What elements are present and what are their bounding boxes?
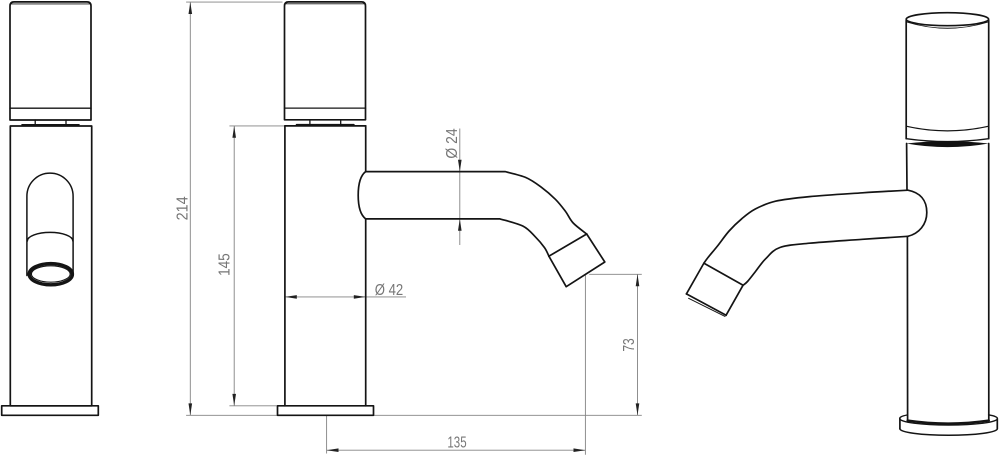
svg-text:214: 214 bbox=[174, 196, 192, 221]
svg-text:Ø 42: Ø 42 bbox=[375, 282, 403, 299]
svg-text:Ø 24: Ø 24 bbox=[443, 128, 461, 158]
svg-text:145: 145 bbox=[217, 253, 234, 276]
svg-text:135: 135 bbox=[447, 432, 466, 450]
svg-text:73: 73 bbox=[619, 338, 637, 351]
